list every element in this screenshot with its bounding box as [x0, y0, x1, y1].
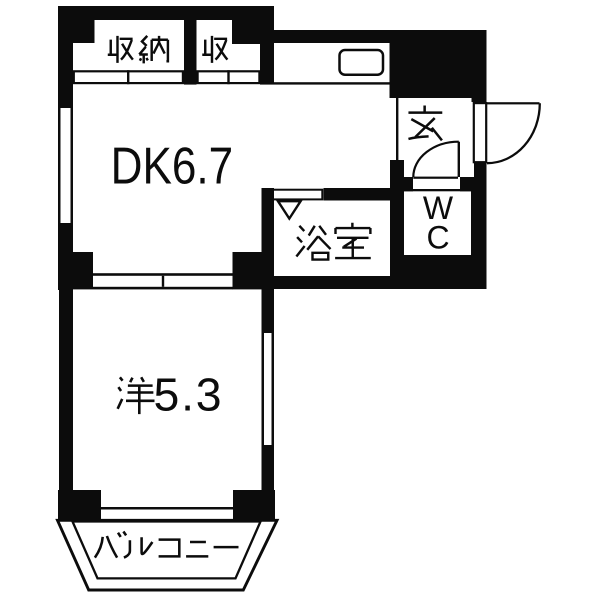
svg-text:5.3: 5.3 — [154, 369, 224, 421]
svg-text:C: C — [426, 220, 449, 256]
svg-text:DK6.7: DK6.7 — [111, 137, 234, 195]
